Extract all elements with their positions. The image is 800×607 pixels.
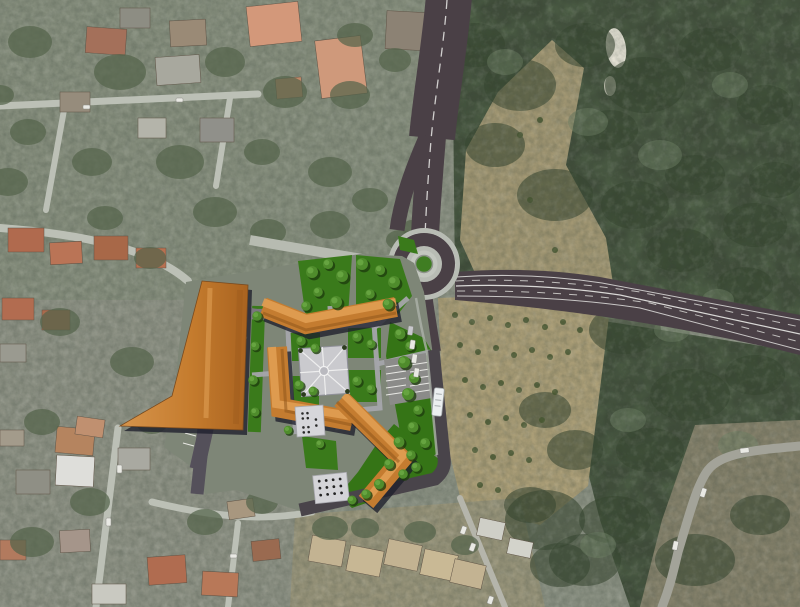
aerial-view-canvas: [0, 0, 800, 607]
southwest-exit-road: [197, 428, 204, 494]
patio-north: [295, 405, 325, 437]
roundabout-island: [416, 256, 433, 273]
plaza: [298, 345, 350, 397]
aerial-masterplan-view: [0, 0, 800, 607]
north-approach-road: [432, 0, 449, 138]
patio-south: [313, 472, 350, 503]
